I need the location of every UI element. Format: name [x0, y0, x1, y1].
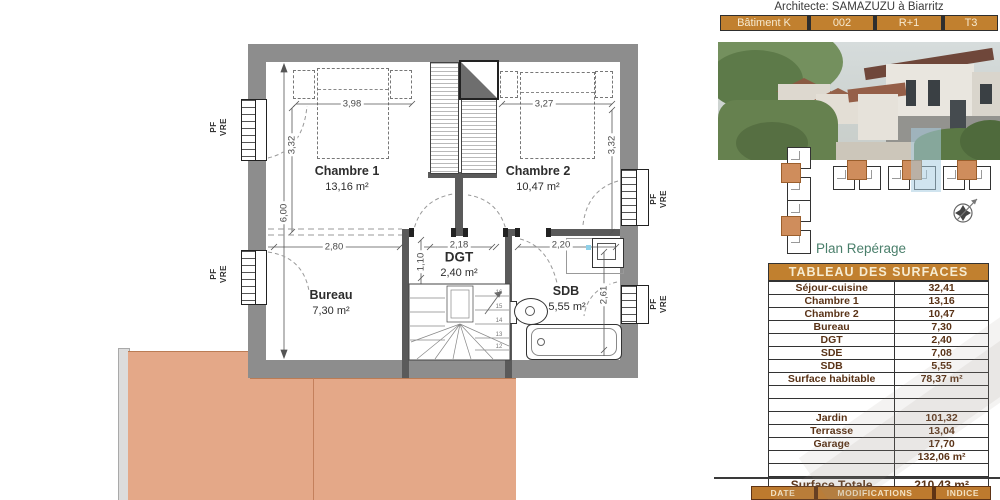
reperage-icon-vertical [781, 200, 811, 252]
building-info-row: Bâtiment K 002 R+1 T3 [720, 15, 998, 31]
nightstand [595, 71, 613, 98]
table-row: DGT2,40 [769, 334, 989, 347]
footer-indice: INDICE [936, 487, 990, 499]
reperage-icon-pair [833, 160, 879, 190]
row-value: 7,30 [895, 321, 989, 334]
room-area-bureau: 7,30 m² [312, 305, 349, 317]
window-left-bottom [241, 250, 267, 305]
marker-blue [586, 245, 591, 250]
window-label-left-top: PF VRE [199, 107, 239, 147]
info-type: T3 [944, 15, 998, 31]
architect-line: Architecte: SAMAZUZU à Biarritz [718, 1, 1000, 13]
window-label-left-bottom: PF VRE [199, 254, 239, 294]
bathtub [526, 324, 622, 360]
stair-step-number: 15 [496, 304, 503, 310]
terrace-divider [313, 378, 314, 500]
closet-right [461, 96, 497, 174]
bed-chambre2 [520, 72, 595, 159]
staircase: 16 15 14 13 12 [409, 284, 510, 360]
nightstand [293, 70, 315, 99]
house-render [718, 42, 1000, 160]
door-posts [409, 228, 551, 237]
dim-332-left: 3,32 [287, 134, 298, 157]
dim-398: 3,98 [341, 99, 364, 110]
terrace-right [250, 378, 516, 500]
room-area-chambre1: 13,16 m² [325, 181, 368, 193]
vre-label: VRE [659, 190, 669, 208]
vre-label: VRE [659, 295, 669, 313]
nightstand [390, 70, 412, 99]
dim-218: 2,18 [448, 240, 471, 251]
duct-triangle [461, 62, 497, 98]
bed-chambre1 [317, 68, 389, 159]
dim-110: 1,10 [416, 251, 427, 274]
dim-280: 2,80 [323, 242, 346, 253]
row-label: Chambre 1 [769, 295, 895, 308]
window-left-top [241, 99, 267, 161]
wall-mid-c [548, 229, 620, 236]
dim-327: 3,27 [533, 99, 556, 110]
render-window [906, 80, 916, 106]
wall-mid-a [402, 229, 413, 236]
pf-label: PF [209, 121, 219, 132]
floorplan-sheet: PF VRE PF VRE PF VRE PF VRE [0, 0, 1000, 500]
vre-label: VRE [219, 118, 229, 136]
dim-220: 2,20 [550, 240, 573, 251]
window-label-right-bottom: PF VRE [639, 284, 679, 324]
stair-step-number: 14 [496, 318, 503, 324]
pf-label: PF [209, 268, 219, 279]
closet-left [430, 62, 459, 174]
table-row: Chambre 210,47 [769, 308, 989, 321]
dim-332-right: 3,32 [607, 134, 618, 157]
room-label-chambre2: Chambre 2 [506, 164, 571, 178]
washbasin-bowl [597, 243, 616, 260]
stair-step-number: 13 [496, 332, 503, 338]
bed-pillow-line [521, 73, 594, 93]
render-porch [858, 94, 898, 140]
unit-highlight [911, 128, 941, 192]
table-row: Séjour-cuisine32,41 [769, 282, 989, 295]
pf-label: PF [649, 193, 659, 204]
info-batiment: Bâtiment K [720, 15, 808, 31]
nightstand [500, 71, 518, 98]
render-window [928, 80, 940, 106]
room-label-bureau: Bureau [309, 288, 352, 302]
room-label-chambre1: Chambre 1 [315, 164, 380, 178]
wall-mid-stub [455, 178, 463, 236]
duct-shaft [459, 60, 499, 100]
wall-mid-b [507, 229, 517, 236]
room-area-dgt: 2,40 m² [440, 267, 477, 279]
row-label: Chambre 2 [769, 308, 895, 321]
surfaces-table-title: TABLEAU DES SURFACES [768, 263, 989, 281]
row-label [769, 386, 895, 399]
info-lot: 002 [810, 15, 874, 31]
row-value: 10,47 [895, 308, 989, 321]
stair-step-number: 16 [496, 290, 503, 296]
room-label-sdb: SDB [553, 284, 579, 298]
terrace-left [128, 351, 250, 500]
dim-600: 6,00 [279, 202, 290, 225]
row-label: Séjour-cuisine [769, 282, 895, 295]
toilet-bowl [514, 298, 548, 325]
row-label: Bureau [769, 321, 895, 334]
wall-bureau-dgt [402, 236, 409, 378]
toilet-drain [525, 306, 535, 316]
window-pane [255, 251, 266, 304]
room-area-sdb: 5,55 m² [548, 301, 585, 313]
table-row: Bureau7,30 [769, 321, 989, 334]
reperage-icon-pair [943, 160, 989, 190]
room-area-chambre2: 10,47 m² [516, 181, 559, 193]
reperage-icon-vertical [781, 147, 811, 199]
wall-top [248, 44, 638, 62]
row-label: Surface habitable [769, 373, 895, 386]
pf-label: PF [649, 298, 659, 309]
row-label: SDE [769, 347, 895, 360]
stair-step-number: 12 [496, 344, 503, 350]
wall-left [248, 44, 266, 378]
row-value: 32,41 [895, 282, 989, 295]
info-etage: R+1 [876, 15, 942, 31]
washbasin-cabinet [592, 238, 624, 268]
bed-pillow-line [318, 69, 388, 90]
vre-label: VRE [219, 265, 229, 283]
window-label-right-top: PF VRE [639, 179, 679, 219]
row-value: 13,16 [895, 295, 989, 308]
render-window [980, 84, 992, 104]
window-pane [255, 100, 266, 160]
room-label-dgt: DGT [445, 250, 474, 265]
dim-261: 2,61 [599, 284, 610, 307]
bathtub-drain [537, 338, 545, 346]
row-label: DGT [769, 334, 895, 347]
wall-bottom [248, 360, 638, 378]
north-compass-icon [950, 196, 980, 226]
table-row: Chambre 113,16 [769, 295, 989, 308]
row-label: SDB [769, 360, 895, 373]
reperage-label: Plan Repérage [816, 241, 906, 256]
